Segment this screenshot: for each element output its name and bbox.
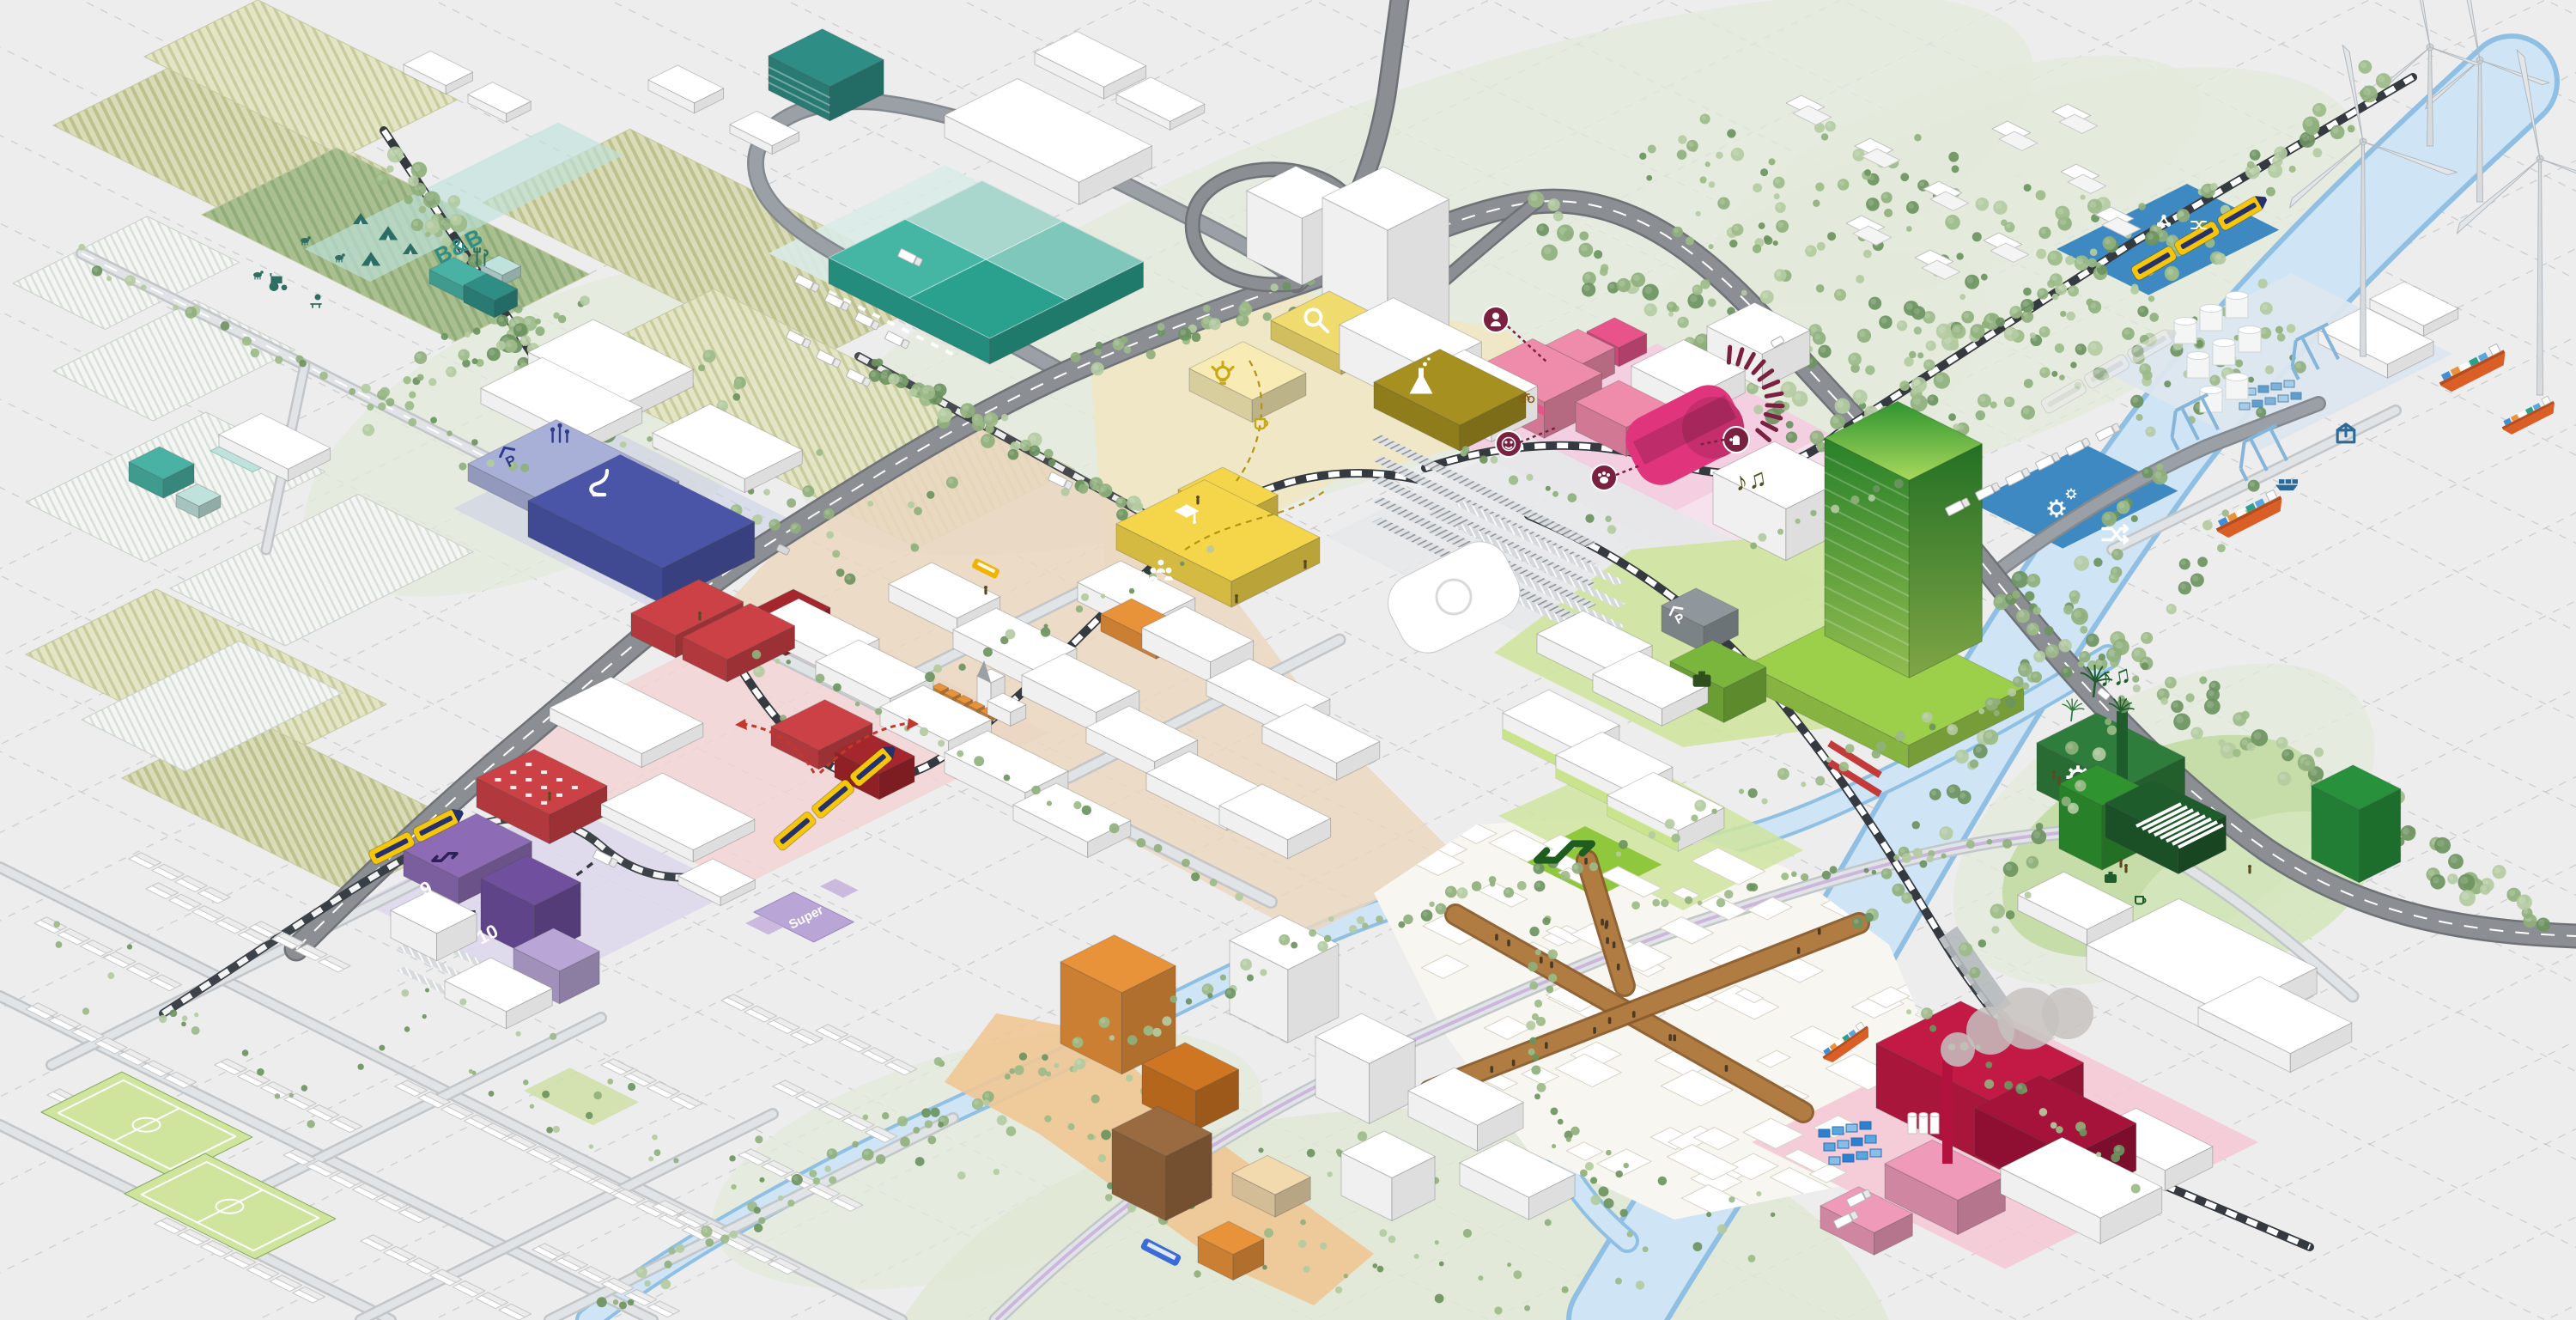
hand-badge	[1723, 427, 1749, 453]
paw-badge	[1591, 465, 1617, 490]
green-tower	[1825, 402, 1982, 678]
music-notes-station: ♪♫	[1732, 464, 1769, 497]
city-map: B&B Super 9 10 P P ♪♫ ♪♫	[0, 0, 2576, 1320]
silos	[1908, 1113, 1939, 1134]
isometric-map-svg: B&B Super 9 10 P P ♪♫ ♪♫	[0, 0, 2576, 1320]
green-tower-east	[2312, 765, 2401, 883]
person-badge	[1483, 307, 1509, 332]
generated-scene	[0, 0, 2576, 1320]
performer-badge	[1496, 431, 1522, 457]
music-notes-event: ♪♫	[2097, 660, 2133, 693]
